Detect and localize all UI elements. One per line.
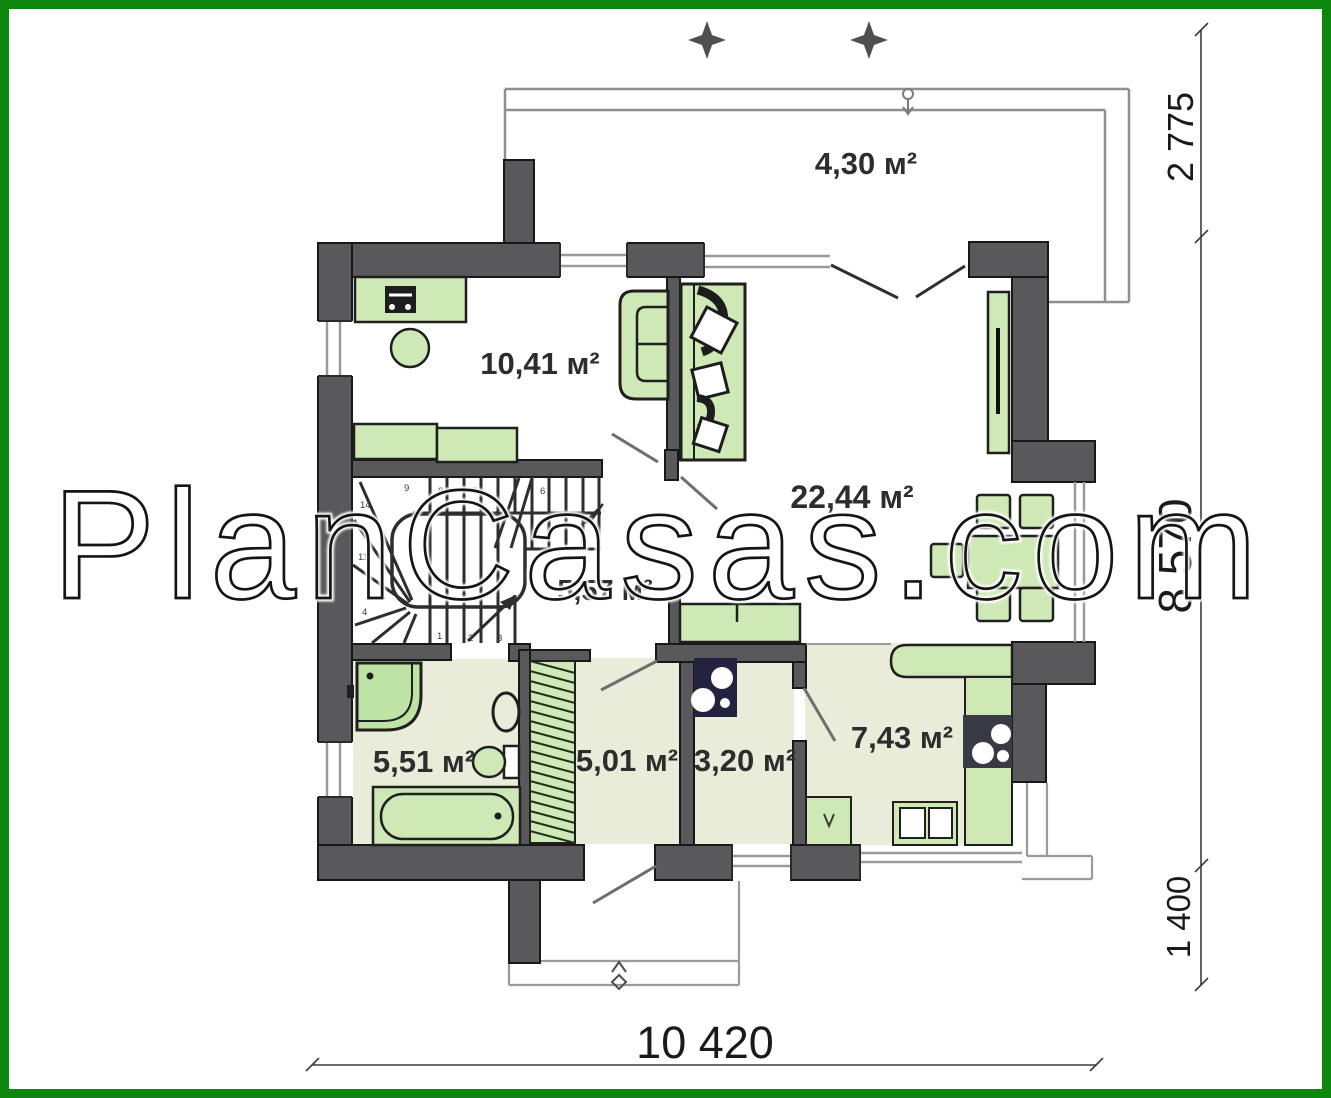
svg-text:1: 1	[437, 631, 442, 642]
svg-text:4,30 м²: 4,30 м²	[815, 146, 917, 181]
svg-text:10,41 м²: 10,41 м²	[480, 346, 599, 381]
svg-text:PlanCasas.com: PlanCasas.com	[52, 458, 1267, 631]
svg-text:5,01 м²: 5,01 м²	[576, 743, 678, 778]
svg-text:5,51 м²: 5,51 м²	[373, 744, 475, 779]
svg-text:3: 3	[497, 633, 502, 644]
svg-text:7,43 м²: 7,43 м²	[851, 720, 953, 755]
svg-text:10 420: 10 420	[636, 1017, 774, 1068]
svg-text:3,20 м²: 3,20 м²	[694, 743, 796, 778]
svg-text:2: 2	[468, 633, 473, 644]
svg-text:2 775: 2 775	[1160, 92, 1201, 182]
svg-text:1 400: 1 400	[1160, 876, 1197, 959]
